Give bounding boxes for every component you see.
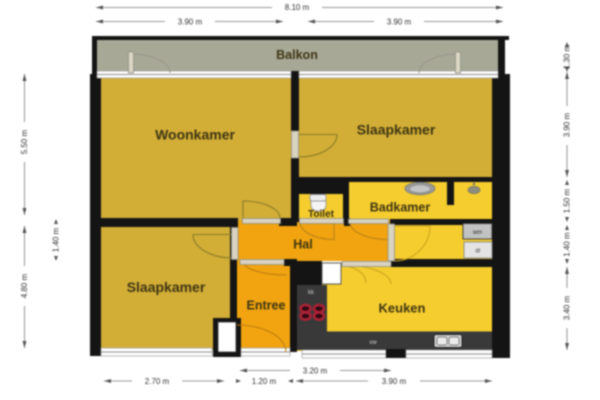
svg-text:Slaapkamer: Slaapkamer: [127, 279, 206, 295]
svg-text:5.50 m: 5.50 m: [20, 129, 29, 154]
svg-text:vw: vw: [369, 340, 377, 346]
svg-text:4.80 m: 4.80 m: [20, 273, 29, 298]
svg-text:Woonkamer: Woonkamer: [155, 127, 235, 143]
svg-text:1.40 m: 1.40 m: [52, 227, 61, 252]
svg-text:Slaapkamer: Slaapkamer: [357, 122, 436, 138]
svg-text:Hal: Hal: [293, 238, 312, 252]
svg-text:Toilet: Toilet: [308, 209, 335, 220]
svg-text:3.90 m: 3.90 m: [178, 18, 203, 27]
svg-text:1.20 m: 1.20 m: [252, 377, 277, 386]
svg-text:3.40 m: 3.40 m: [563, 295, 572, 320]
svg-text:8.10 m: 8.10 m: [285, 3, 310, 12]
svg-text:Balkon: Balkon: [276, 48, 318, 62]
svg-text:1.50 m: 1.50 m: [563, 188, 572, 213]
svg-text:3.20 m: 3.20 m: [303, 367, 328, 376]
svg-text:dr: dr: [475, 249, 480, 255]
svg-text:2.70 m: 2.70 m: [145, 377, 170, 386]
svg-text:1.30 m: 1.30 m: [563, 44, 572, 69]
svg-text:Badkamer: Badkamer: [370, 201, 431, 215]
svg-text:3.90 m: 3.90 m: [387, 18, 412, 27]
svg-text:kk: kk: [308, 290, 315, 296]
svg-text:3.90 m: 3.90 m: [382, 377, 407, 386]
svg-text:Keuken: Keuken: [379, 301, 426, 316]
svg-text:Entree: Entree: [247, 299, 286, 313]
svg-text:wm: wm: [472, 230, 482, 236]
svg-text:1.40 m: 1.40 m: [563, 232, 572, 257]
svg-text:3.90 m: 3.90 m: [563, 112, 572, 137]
